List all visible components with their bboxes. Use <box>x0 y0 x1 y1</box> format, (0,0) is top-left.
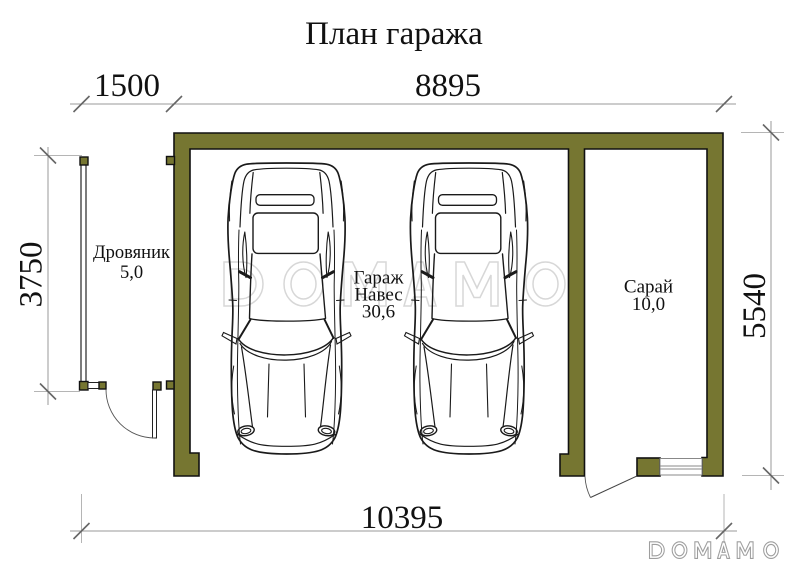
svg-text:1500: 1500 <box>94 68 160 104</box>
svg-text:10395: 10395 <box>361 500 444 536</box>
svg-text:10,0: 10,0 <box>632 294 665 315</box>
svg-text:8895: 8895 <box>415 68 481 104</box>
svg-text:План гаража: План гаража <box>305 16 483 52</box>
svg-text:3750: 3750 <box>14 242 50 308</box>
svg-text:5,0: 5,0 <box>120 263 143 283</box>
svg-text:30,6: 30,6 <box>362 302 395 323</box>
svg-text:Дровяник: Дровяник <box>93 243 170 263</box>
svg-text:5540: 5540 <box>737 273 773 339</box>
